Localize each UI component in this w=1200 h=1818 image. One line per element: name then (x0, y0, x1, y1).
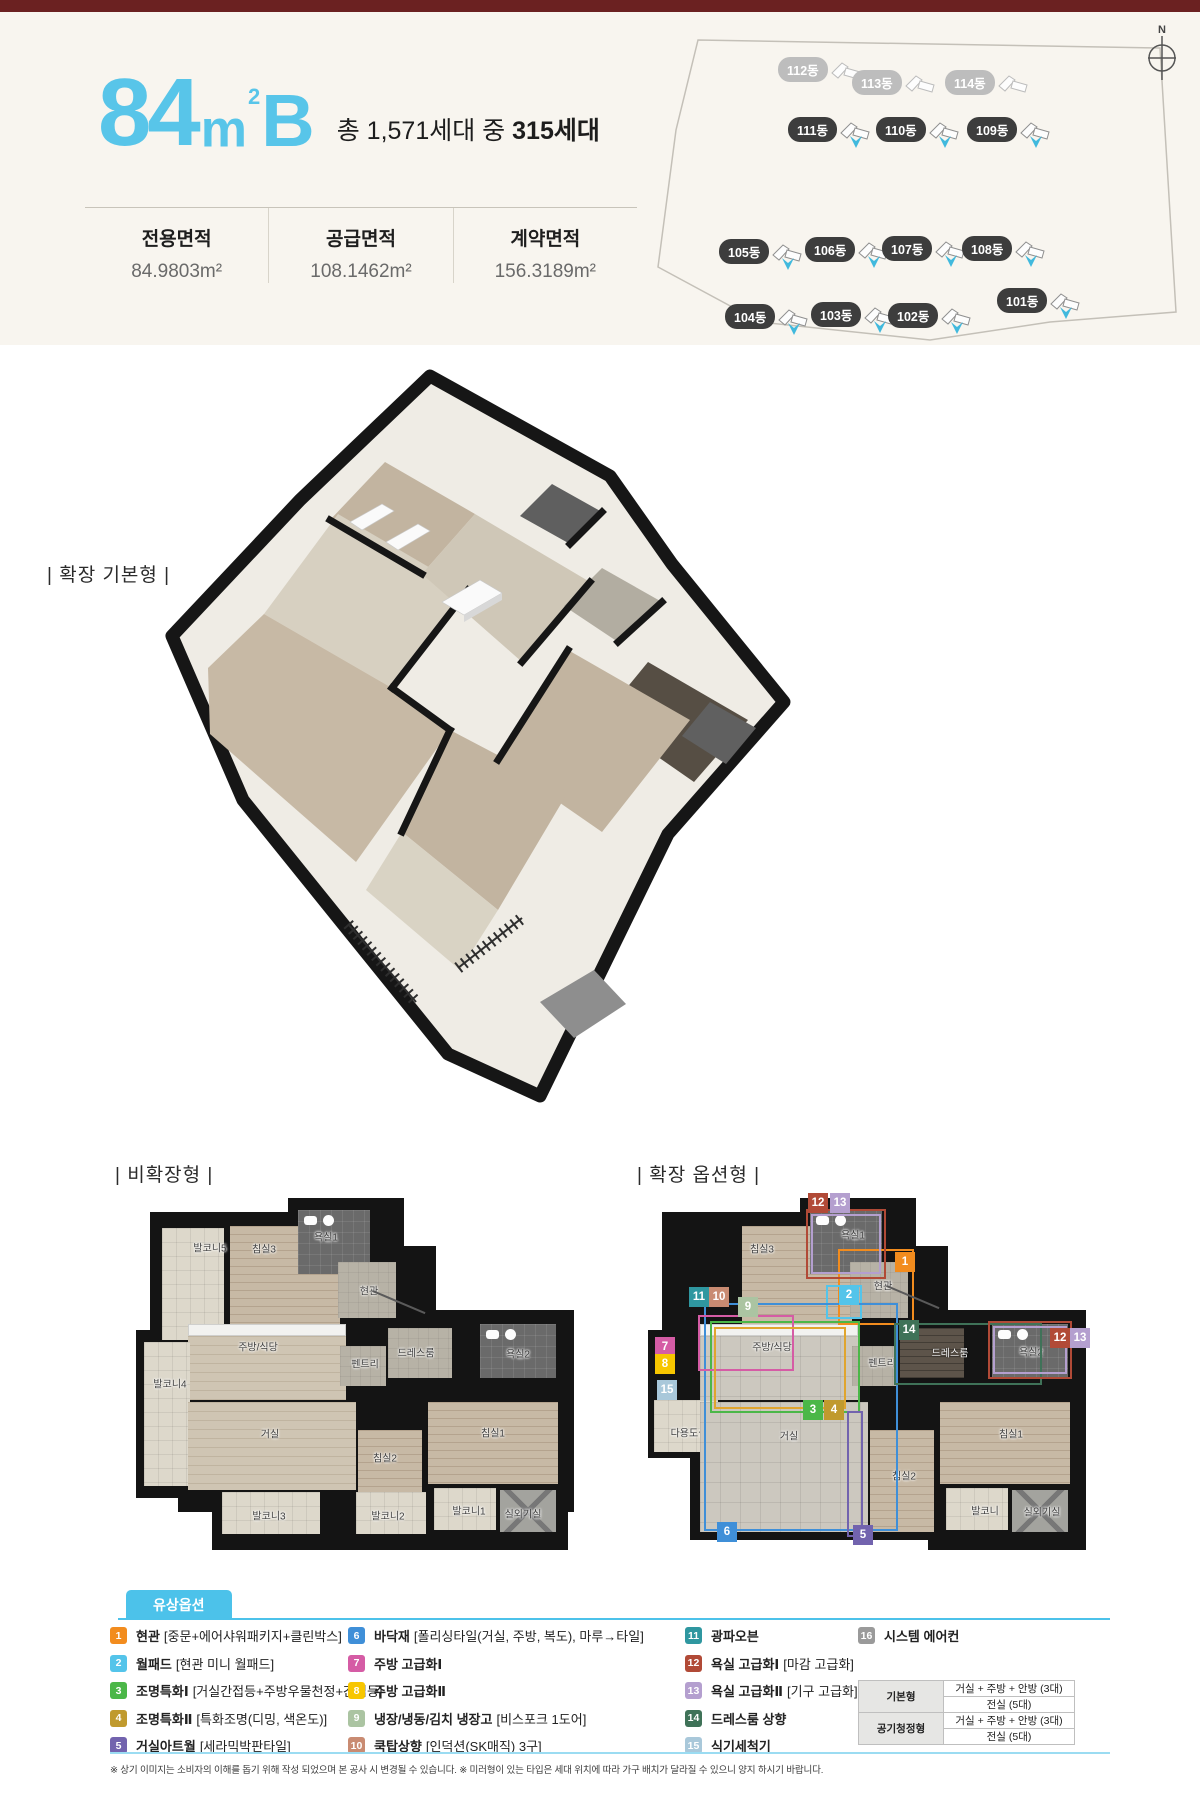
area-label: 계약면적 (454, 224, 637, 251)
option-badge-12: 12 (808, 1193, 828, 1213)
area-unit: m2 (201, 91, 260, 159)
option-outline (714, 1327, 846, 1409)
option-item-12: 12욕실 고급화Ⅰ[마감 고급화] (685, 1650, 858, 1678)
option-name: 욕실 고급화Ⅱ (711, 1681, 783, 1700)
page: 84 m2 B 총 1,571세대 중 315세대 전용면적84.9803m²공… (0, 0, 1200, 1818)
aircon-value: 거실 + 주방 + 안방 (3대) (944, 1713, 1075, 1729)
option-badge-14: 14 (899, 1320, 919, 1340)
room-label: 발코니3 (252, 1508, 285, 1523)
area-column: 전용면적84.9803m² (85, 208, 268, 283)
area-column: 공급면적108.1462m² (268, 208, 452, 283)
unit-count-prefix: 총 1,571세대 중 (337, 117, 512, 145)
floor-plan-option: 침실3욕실1현관주방/식당펜트리드레스룸욕실2다용도실거실침실2침실1발코니실외… (640, 1198, 1086, 1550)
building-shape-icon (839, 119, 873, 150)
legend-column-3: 11광파오븐12욕실 고급화Ⅰ[마감 고급화]13욕실 고급화Ⅱ[기구 고급화]… (685, 1622, 858, 1760)
building-marker-104동: 104동 (725, 304, 811, 337)
unit-count-bold: 315세대 (512, 117, 600, 145)
option-number-badge: 4 (110, 1710, 127, 1727)
header-section: 84 m2 B 총 1,571세대 중 315세대 전용면적84.9803m²공… (0, 12, 1200, 345)
building-shape-icon (940, 305, 974, 336)
compass-icon: N (1140, 22, 1184, 89)
option-item-2: 2월패드[현관 미니 월패드] (110, 1650, 383, 1678)
room-label: 발코니4 (153, 1376, 186, 1391)
building-label: 105동 (719, 239, 769, 264)
option-badge-2: 2 (839, 1285, 859, 1305)
option-item-13: 13욕실 고급화Ⅱ[기구 고급화] (685, 1677, 858, 1705)
aircon-type: 기본형 (859, 1681, 944, 1713)
room-거실 (188, 1402, 356, 1490)
floor-plan-basic: 발코니5침실3욕실1현관주방/식당발코니4펜트리드레스룸욕실2거실침실2침실1발… (128, 1198, 574, 1550)
option-desc: [기구 고급화] (787, 1681, 858, 1700)
option-number-badge: 1 (110, 1627, 127, 1644)
building-marker-109동: 109동 (967, 117, 1053, 150)
paid-options-tab: 유상옵션 (126, 1590, 232, 1620)
aircon-value: 전실 (5대) (944, 1697, 1075, 1713)
aircon-table: 기본형거실 + 주방 + 안방 (3대)전실 (5대)공기청정형거실 + 주방 … (858, 1680, 1075, 1745)
building-label: 106동 (805, 237, 855, 262)
area-unit-sup: 2 (248, 84, 260, 109)
room-침실1 (940, 1402, 1070, 1484)
building-marker-106동: 106동 (805, 237, 891, 270)
aircon-type: 공기청정형 (859, 1713, 944, 1745)
aircon-value: 거실 + 주방 + 안방 (3대) (944, 1681, 1075, 1697)
area-value: 108.1462m² (269, 261, 452, 283)
option-badge-3: 3 (803, 1400, 823, 1420)
plan-title: 84 m2 B 총 1,571세대 중 315세대 (98, 67, 600, 159)
building-marker-111동: 111동 (788, 117, 873, 150)
area-column: 계약면적156.3189m² (453, 208, 637, 283)
disclaimer-text: ※ 상기 이미지는 소비자의 이해를 돕기 위해 작성 되었으며 본 공사 시 … (110, 1762, 823, 1776)
option-desc: [마감 고급화] (783, 1654, 854, 1673)
option-number-badge: 8 (348, 1682, 365, 1699)
option-item-3: 3조명특화Ⅰ[거실간접등+주방우물천정+간접등] (110, 1677, 383, 1705)
option-number-badge: 12 (685, 1655, 702, 1672)
option-item-4: 4조명특화Ⅱ[특화조명(디밍, 색온도)] (110, 1705, 383, 1733)
room-fixture (188, 1324, 346, 1336)
option-name: 욕실 고급화Ⅰ (711, 1654, 779, 1673)
option-badge-8: 8 (655, 1354, 675, 1374)
area-table: 전용면적84.9803m²공급면적108.1462m²계약면적156.3189m… (85, 207, 637, 283)
option-badge-10: 10 (709, 1287, 729, 1307)
room-label: 드레스룸 (398, 1345, 435, 1360)
option-number-badge: 9 (348, 1710, 365, 1727)
paid-options-header: 유상옵션 (118, 1590, 1110, 1620)
legend-column-1: 1현관[중문+에어샤워패키지+클린박스]2월패드[현관 미니 월패드]3조명특화… (110, 1622, 383, 1760)
option-badge-5: 5 (853, 1525, 873, 1545)
room-label: 침실1 (999, 1426, 1023, 1441)
basic-plan-label: | 비확장형 | (115, 1160, 213, 1187)
option-badge-9: 9 (738, 1297, 758, 1317)
area-variant: B (261, 83, 314, 159)
room-label: 욕실2 (506, 1346, 530, 1361)
building-marker-107동: 107동 (882, 236, 968, 269)
option-number-badge: 2 (110, 1655, 127, 1672)
option-outline (847, 1411, 863, 1537)
building-shape-icon (997, 72, 1031, 103)
building-shape-icon (1049, 290, 1083, 321)
building-label: 114동 (945, 70, 995, 95)
option-item-14: 14드레스룸 상향 (685, 1705, 858, 1733)
option-badge-11: 11 (689, 1287, 709, 1307)
room-label: 펜트리 (351, 1356, 379, 1371)
room-label: 침실2 (373, 1450, 397, 1465)
option-item-9: 9냉장/냉동/김치 냉장고[비스포크 1도어] (348, 1705, 644, 1733)
aircon-row: 공기청정형거실 + 주방 + 안방 (3대) (859, 1713, 1075, 1729)
option-number-badge: 14 (685, 1710, 702, 1727)
building-label: 110동 (876, 117, 926, 142)
option-name: 조명특화Ⅰ (136, 1681, 189, 1700)
building-label: 102동 (888, 303, 938, 328)
room-label: 거실 (261, 1426, 279, 1441)
option-badge-6: 6 (717, 1522, 737, 1542)
building-label: 104동 (725, 304, 775, 329)
building-label: 101동 (997, 288, 1047, 313)
building-label: 111동 (788, 117, 837, 142)
option-number-badge: 3 (110, 1682, 127, 1699)
option-item-7: 7주방 고급화Ⅰ (348, 1650, 644, 1678)
room-label: 실외기실 (1024, 1504, 1061, 1519)
building-marker-110동: 110동 (876, 117, 962, 150)
legend-column-4: 16시스템 에어컨 (858, 1622, 959, 1650)
option-outline (811, 1214, 881, 1274)
option-name: 주방 고급화Ⅰ (374, 1654, 442, 1673)
option-badge-15: 15 (657, 1380, 677, 1400)
building-shape-icon (1014, 238, 1048, 269)
option-name: 주방 고급화Ⅱ (374, 1681, 446, 1700)
area-label: 공급면적 (269, 224, 452, 251)
option-badge-12: 12 (1050, 1328, 1070, 1348)
room-label: 현관 (360, 1283, 378, 1298)
option-number-badge: 6 (348, 1627, 365, 1644)
option-item-8: 8주방 고급화Ⅱ (348, 1677, 644, 1705)
area-unit-m: m (201, 100, 247, 158)
option-badge-13: 13 (830, 1193, 850, 1213)
building-label: 107동 (882, 236, 932, 261)
option-number-badge: 7 (348, 1655, 365, 1672)
building-marker-105동: 105동 (719, 239, 805, 272)
room-label: 발코니2 (371, 1508, 404, 1523)
option-desc: [현관 미니 월패드] (176, 1654, 274, 1673)
option-badge-13: 13 (1070, 1328, 1090, 1348)
option-name: 현관 (136, 1626, 160, 1645)
option-item-16: 16시스템 에어컨 (858, 1622, 959, 1650)
option-name: 월패드 (136, 1654, 172, 1673)
option-item-10: 10쿡탑상향[인덕션(SK매직) 3구] (348, 1732, 644, 1760)
option-badge-4: 4 (824, 1400, 844, 1420)
building-marker-113동: 113동 (852, 70, 938, 103)
building-marker-101동: 101동 (997, 288, 1083, 321)
option-item-6: 6바닥재[폴리싱타일(거실, 주방, 복도), 마루→타일] (348, 1622, 644, 1650)
room-label: 침실1 (481, 1425, 505, 1440)
building-marker-114동: 114동 (945, 70, 1031, 103)
option-desc: [비스포크 1도어] (496, 1709, 586, 1728)
building-shape-icon (904, 72, 938, 103)
option-number-badge: 11 (685, 1627, 702, 1644)
option-name: 바닥재 (374, 1626, 410, 1645)
option-name: 조명특화Ⅱ (136, 1709, 192, 1728)
unit-count-text: 총 1,571세대 중 315세대 (337, 111, 600, 147)
room-label: 주방/식당 (238, 1339, 278, 1354)
option-name: 광파오븐 (711, 1626, 759, 1645)
room-label: 발코니1 (452, 1503, 485, 1518)
building-marker-102동: 102동 (888, 303, 974, 336)
isometric-floor-plan (150, 362, 810, 1112)
option-desc: [폴리싱타일(거실, 주방, 복도), 마루→타일] (414, 1626, 644, 1645)
building-marker-112동: 112동 (778, 57, 864, 90)
room-label: 발코니5 (193, 1240, 226, 1255)
building-label: 108동 (962, 236, 1012, 261)
building-label: 103동 (811, 302, 861, 327)
site-map: 112동 113동 114동 111동 110동 109동 105동 106동 … (620, 12, 1198, 352)
site-boundary (620, 12, 1198, 352)
room-label: 침실3 (750, 1241, 774, 1256)
room-label: 침실3 (252, 1241, 276, 1256)
building-shape-icon (771, 241, 805, 272)
room-침실1 (428, 1402, 558, 1484)
building-marker-108동: 108동 (962, 236, 1048, 269)
room-label: 욕실1 (314, 1229, 338, 1244)
room-label: 실외기실 (505, 1506, 542, 1521)
option-name: 냉장/냉동/김치 냉장고 (374, 1709, 492, 1728)
option-name: 드레스룸 상향 (711, 1709, 786, 1728)
building-label: 113동 (852, 70, 902, 95)
option-item-1: 1현관[중문+에어샤워패키지+클린박스] (110, 1622, 383, 1650)
option-item-15: 15식기세척기 (685, 1732, 858, 1760)
area-number: 84 (98, 67, 197, 159)
room-label: 발코니 (971, 1503, 999, 1518)
option-desc: [특화조명(디밍, 색온도)] (196, 1709, 327, 1728)
aircon-row: 기본형거실 + 주방 + 안방 (3대) (859, 1681, 1075, 1697)
area-value: 156.3189m² (454, 261, 637, 283)
legend-column-2: 6바닥재[폴리싱타일(거실, 주방, 복도), 마루→타일]7주방 고급화Ⅰ8주… (348, 1622, 644, 1760)
building-label: 109동 (967, 117, 1017, 142)
building-shape-icon (1019, 119, 1053, 150)
option-number-badge: 16 (858, 1627, 875, 1644)
option-item-5: 5거실아트월[세라믹박판타일] (110, 1732, 383, 1760)
option-badge-1: 1 (895, 1252, 915, 1272)
building-shape-icon (928, 119, 962, 150)
option-number-badge: 13 (685, 1682, 702, 1699)
legend-divider (110, 1752, 1110, 1754)
aircon-value: 전실 (5대) (944, 1729, 1075, 1745)
room-발코니4 (144, 1342, 190, 1486)
option-name: 시스템 에어컨 (884, 1626, 959, 1645)
building-shape-icon (777, 306, 811, 337)
area-value: 84.9803m² (85, 261, 268, 283)
building-label: 112동 (778, 57, 828, 82)
area-label: 전용면적 (85, 224, 268, 251)
option-plan-label: | 확장 옵션형 | (637, 1160, 760, 1187)
building-marker-103동: 103동 (811, 302, 897, 335)
option-desc: [중문+에어샤워패키지+클린박스] (164, 1626, 342, 1645)
option-item-11: 11광파오븐 (685, 1622, 858, 1650)
top-accent-bar (0, 0, 1200, 12)
svg-text:N: N (1158, 24, 1166, 36)
